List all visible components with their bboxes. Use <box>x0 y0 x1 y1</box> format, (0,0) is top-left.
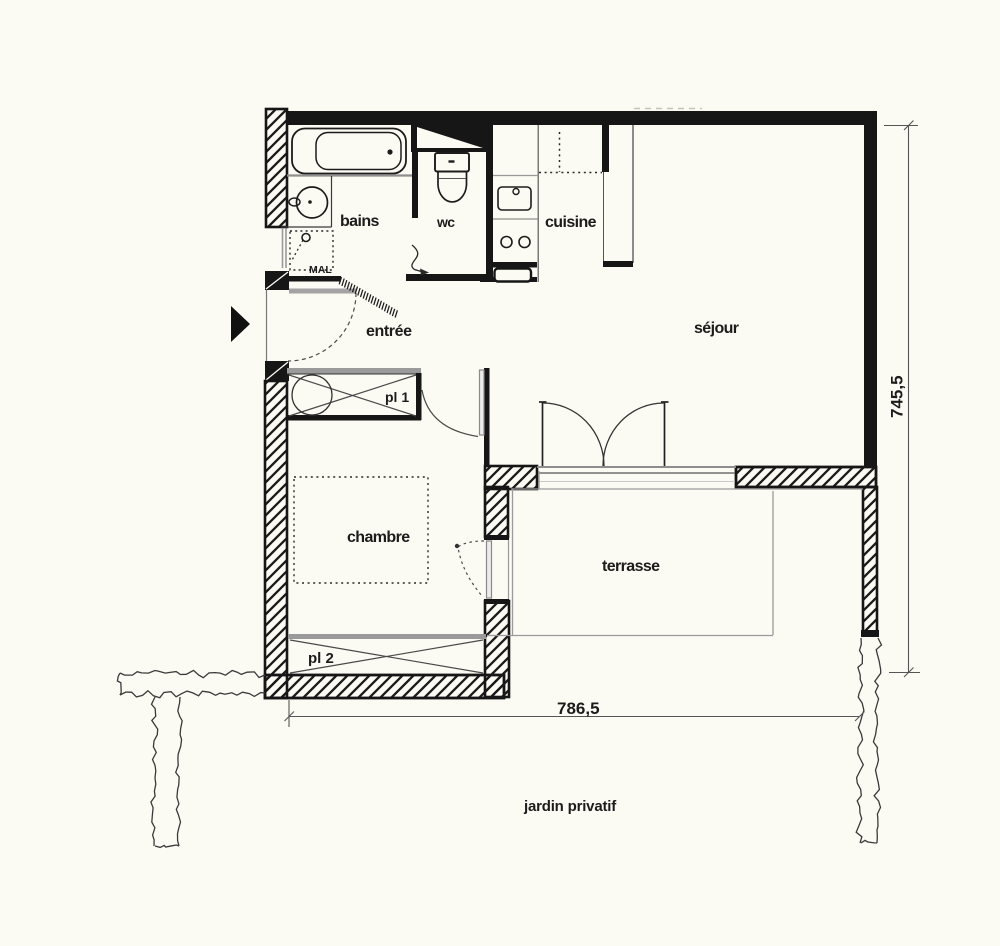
svg-text:jardin privatif: jardin privatif <box>523 798 617 815</box>
svg-text:745,5: 745,5 <box>888 375 907 418</box>
svg-text:786,5: 786,5 <box>557 699 600 718</box>
svg-text:chambre: chambre <box>347 529 410 546</box>
svg-text:pl 1: pl 1 <box>385 389 409 405</box>
svg-text:cuisine: cuisine <box>545 214 597 231</box>
svg-text:pl 2: pl 2 <box>308 650 334 667</box>
svg-text:MAL: MAL <box>309 264 332 276</box>
svg-text:wc: wc <box>436 214 455 230</box>
svg-text:entrée: entrée <box>366 323 412 340</box>
svg-text:terrasse: terrasse <box>602 558 660 575</box>
svg-text:séjour: séjour <box>694 320 739 337</box>
svg-text:bains: bains <box>340 213 379 230</box>
